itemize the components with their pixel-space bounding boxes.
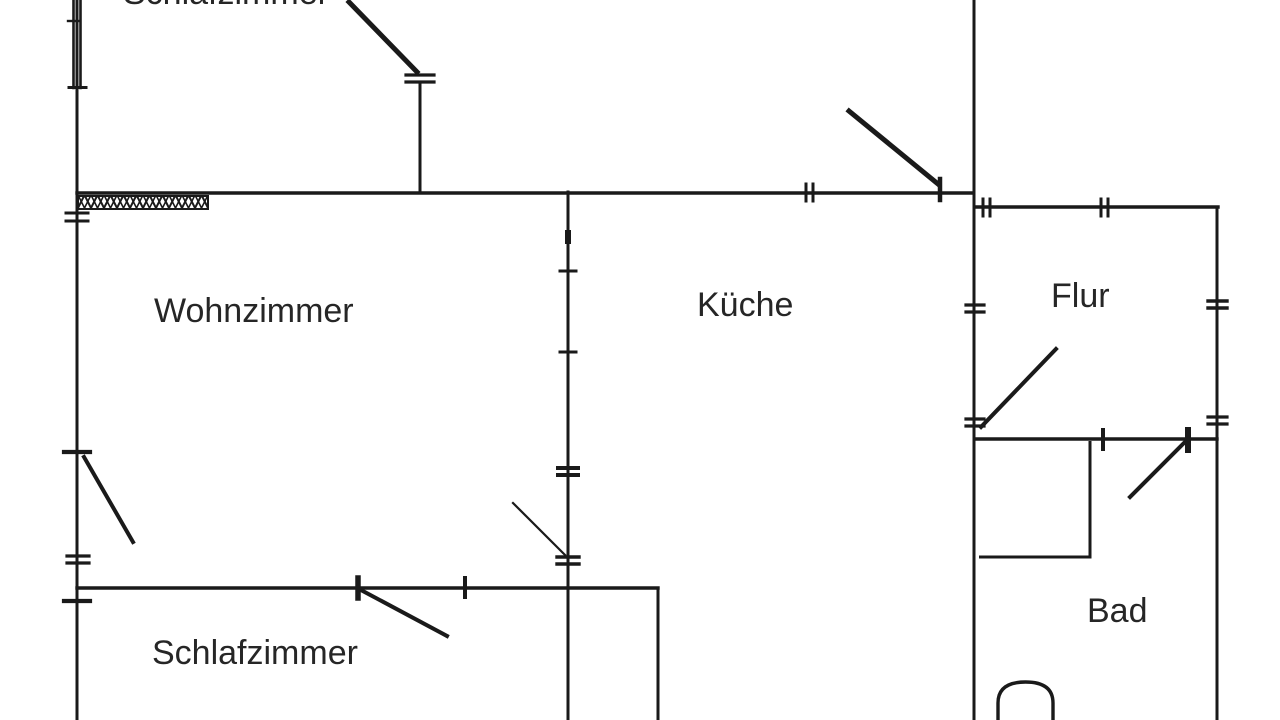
room-label-flur: Flur: [1051, 276, 1110, 316]
room-label-wohnzimmer: Wohnzimmer: [154, 291, 354, 331]
toilet-icon: [998, 682, 1053, 720]
room-label-schlafzimmer-bottom: Schlafzimmer: [152, 633, 358, 673]
door-swing-wohnzimmer-left-icon: [84, 457, 133, 542]
shower-enclosure-icon: [979, 441, 1090, 557]
door-swing-flur-icon: [981, 349, 1056, 427]
room-label-schlafzimmer-top: Schlafzimmer: [123, 0, 329, 13]
radiator-icon: [78, 196, 208, 209]
room-label-bad: Bad: [1087, 591, 1148, 631]
door-swing-schlafzimmer-top-icon: [349, 2, 434, 82]
floor-plan: Schlafzimmer Wohnzimmer Küche Flur Bad S…: [0, 0, 1280, 720]
door-swing-schlafzimmer-bottom-icon: [361, 590, 447, 636]
door-swing-kueche-icon: [513, 503, 565, 555]
door-swing-bad-icon: [1130, 442, 1185, 497]
door-swing-entrance-icon: [849, 111, 940, 200]
room-label-kueche: Küche: [697, 285, 793, 325]
